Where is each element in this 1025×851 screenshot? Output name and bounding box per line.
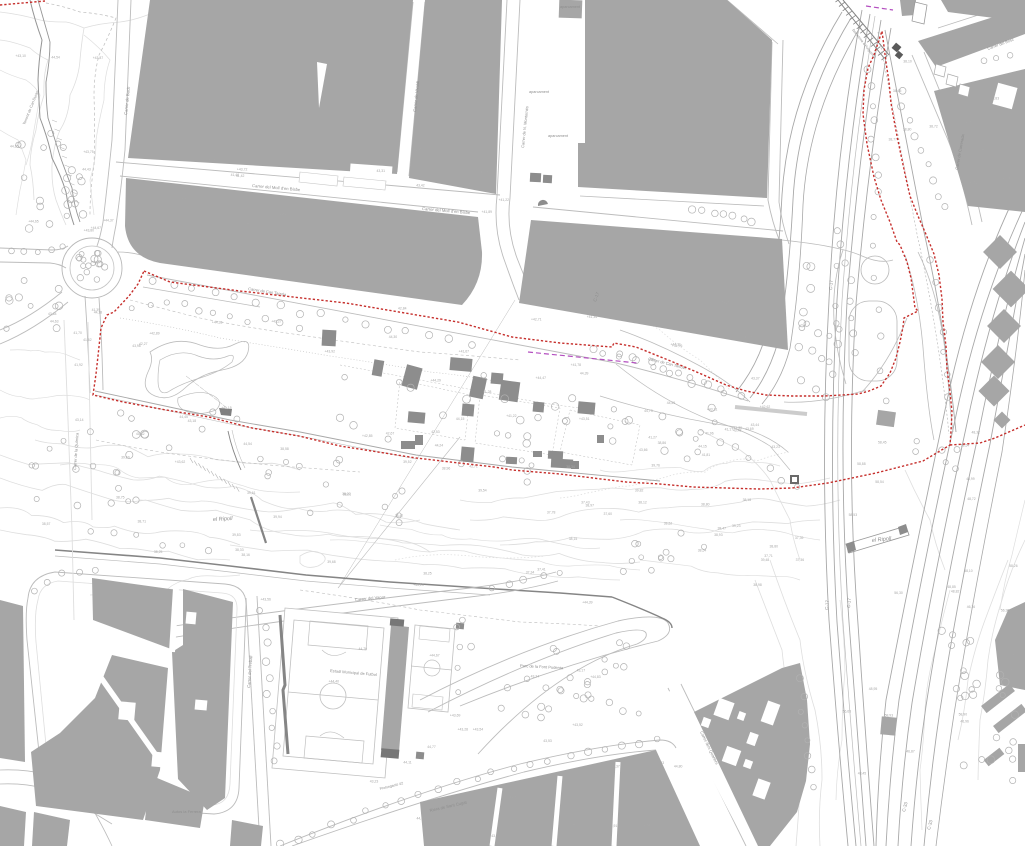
svg-text:+44,37: +44,37 (103, 219, 114, 223)
svg-text:+44,67: +44,67 (429, 654, 440, 658)
svg-text:41,70: 41,70 (73, 331, 82, 335)
svg-text:44,11: 44,11 (403, 761, 411, 765)
svg-text:38,93: 38,93 (714, 533, 723, 537)
svg-text:+42,27: +42,27 (271, 319, 282, 323)
svg-text:39,48: 39,48 (761, 558, 770, 562)
svg-text:+42,62: +42,62 (760, 405, 771, 409)
svg-text:+41,15: +41,15 (221, 406, 232, 410)
svg-text:38,21: 38,21 (343, 493, 352, 497)
svg-text:48,32: 48,32 (972, 431, 981, 435)
svg-text:43,66: 43,66 (639, 448, 648, 452)
svg-text:+43,62: +43,62 (175, 460, 186, 464)
svg-text:aparcament: aparcament (529, 90, 550, 94)
svg-text:+44,33: +44,33 (212, 320, 223, 324)
svg-text:46,87: 46,87 (1008, 653, 1017, 657)
svg-text:+43,69: +43,69 (450, 714, 461, 718)
svg-text:+43,28: +43,28 (458, 728, 469, 732)
svg-text:38,86: 38,86 (658, 441, 667, 445)
svg-text:38,57: 38,57 (42, 522, 51, 526)
svg-text:+43,75: +43,75 (83, 150, 94, 154)
svg-text:43,69: 43,69 (745, 427, 754, 431)
svg-text:37,60: 37,60 (604, 512, 613, 516)
svg-text:44,52: 44,52 (417, 817, 426, 821)
svg-text:44,45: 44,45 (179, 415, 188, 419)
svg-text:43,14: 43,14 (75, 418, 84, 422)
svg-text:38,80: 38,80 (701, 502, 710, 506)
svg-text:+43,10: +43,10 (15, 54, 26, 58)
svg-text:+43,13: +43,13 (413, 583, 424, 587)
svg-text:38,18: 38,18 (743, 498, 752, 502)
svg-text:+44,65: +44,65 (28, 219, 39, 223)
svg-text:+41,22: +41,22 (506, 414, 517, 418)
svg-text:37,39: 37,39 (795, 536, 804, 540)
svg-text:+43,31: +43,31 (707, 408, 718, 412)
svg-text:46,87: 46,87 (906, 750, 915, 754)
svg-text:38,80: 38,80 (903, 127, 912, 131)
svg-text:39,83: 39,83 (232, 533, 241, 537)
svg-text:43,98: 43,98 (132, 344, 141, 348)
svg-text:44,54: 44,54 (243, 442, 252, 446)
svg-text:38,83: 38,83 (991, 96, 1000, 100)
svg-text:41,89: 41,89 (207, 157, 216, 161)
svg-text:58,90: 58,90 (959, 713, 968, 717)
svg-text:37,43: 37,43 (581, 501, 590, 505)
svg-text:44,16: 44,16 (721, 301, 730, 305)
svg-text:44,24: 44,24 (435, 443, 444, 447)
svg-text:43,53: 43,53 (543, 739, 552, 743)
svg-text:41,92: 41,92 (74, 363, 83, 367)
svg-text:58,54: 58,54 (875, 480, 884, 484)
svg-text:38,12: 38,12 (638, 501, 647, 505)
svg-text:44,59: 44,59 (667, 401, 676, 405)
svg-text:56,30: 56,30 (894, 591, 903, 595)
svg-text:56,90: 56,90 (1001, 609, 1010, 613)
svg-text:+42,85: +42,85 (362, 434, 373, 438)
svg-text:37,36: 37,36 (796, 558, 805, 562)
svg-text:44,15: 44,15 (456, 417, 465, 421)
svg-text:58,26: 58,26 (1009, 564, 1018, 568)
svg-text:41,27: 41,27 (648, 435, 657, 439)
svg-text:+43,72: +43,72 (237, 167, 248, 171)
svg-text:C-17: C-17 (828, 279, 834, 290)
svg-text:+41,34: +41,34 (587, 315, 598, 319)
svg-text:+41,22: +41,22 (499, 198, 510, 202)
svg-text:38,75: 38,75 (116, 496, 125, 500)
svg-text:38,72: 38,72 (929, 124, 938, 128)
svg-text:el Ripoll: el Ripoll (213, 516, 234, 523)
svg-text:58,93: 58,93 (885, 714, 894, 718)
svg-text:58,10: 58,10 (964, 569, 973, 573)
svg-text:+43,52: +43,52 (572, 723, 583, 727)
svg-text:38,34: 38,34 (566, 465, 575, 469)
svg-text:38,33: 38,33 (235, 548, 244, 552)
svg-text:43,84: 43,84 (491, 834, 500, 838)
svg-text:39,23: 39,23 (732, 524, 741, 528)
svg-text:43,23: 43,23 (771, 445, 780, 449)
svg-text:C-17: C-17 (846, 597, 852, 608)
svg-text:+44,47: +44,47 (536, 376, 547, 380)
svg-text:46,96: 46,96 (960, 719, 969, 723)
svg-text:48,99: 48,99 (966, 477, 975, 481)
svg-text:+41,89: +41,89 (482, 210, 493, 214)
svg-text:+43,54: +43,54 (473, 728, 484, 732)
svg-text:58,88: 58,88 (857, 462, 866, 466)
svg-text:+41,78: +41,78 (571, 363, 582, 367)
svg-text:38,52: 38,52 (664, 522, 673, 526)
svg-text:+41,18: +41,18 (178, 196, 189, 200)
svg-text:43,64: 43,64 (48, 312, 57, 316)
svg-text:44,80: 44,80 (674, 765, 683, 769)
svg-text:37,71: 37,71 (764, 554, 773, 558)
svg-text:48,45: 48,45 (858, 771, 867, 775)
svg-text:+44,29: +44,29 (430, 378, 441, 382)
svg-text:39,94: 39,94 (273, 515, 282, 519)
svg-text:39,69: 39,69 (121, 455, 130, 459)
svg-text:+44,37: +44,37 (609, 765, 620, 769)
svg-text:aparcament: aparcament (560, 5, 581, 9)
svg-text:43,42: 43,42 (416, 184, 425, 188)
svg-text:+42,82: +42,82 (244, 221, 255, 225)
svg-text:43,59: 43,59 (462, 181, 471, 185)
svg-text:44,18: 44,18 (94, 311, 103, 315)
svg-text:39,54: 39,54 (478, 489, 487, 493)
svg-text:+43,65: +43,65 (478, 170, 489, 174)
svg-text:56,65: 56,65 (843, 710, 852, 714)
svg-text:44,15: 44,15 (698, 444, 707, 448)
svg-text:48,82: 48,82 (951, 590, 960, 594)
svg-text:41,42: 41,42 (236, 174, 245, 178)
svg-text:+44,54: +44,54 (640, 824, 651, 828)
svg-text:48,72: 48,72 (967, 497, 976, 501)
svg-text:43,23: 43,23 (370, 779, 379, 783)
svg-text:aparcament: aparcament (548, 134, 569, 138)
svg-text:44,73: 44,73 (644, 409, 653, 413)
svg-text:44,30: 44,30 (389, 335, 398, 339)
svg-text:44,33: 44,33 (656, 761, 665, 765)
svg-text:+41,21: +41,21 (276, 212, 287, 216)
svg-text:44,70: 44,70 (359, 647, 368, 651)
svg-text:38,15: 38,15 (569, 537, 578, 541)
svg-text:37,78: 37,78 (547, 511, 556, 515)
svg-text:+42,71: +42,71 (531, 318, 542, 322)
svg-text:+42,75: +42,75 (742, 335, 753, 339)
svg-text:+44,40: +44,40 (329, 679, 340, 683)
svg-text:41,30: 41,30 (734, 426, 743, 430)
svg-text:39,52: 39,52 (403, 460, 412, 464)
svg-text:38,25: 38,25 (423, 572, 432, 576)
svg-text:+43,51: +43,51 (579, 417, 590, 421)
svg-text:58,45: 58,45 (878, 441, 887, 445)
svg-text:41,28: 41,28 (483, 390, 492, 394)
svg-text:58,53: 58,53 (849, 513, 858, 517)
svg-text:38,51: 38,51 (969, 181, 978, 185)
svg-text:44,63: 44,63 (50, 320, 59, 324)
svg-text:Autos la Ferrera: Autos la Ferrera (172, 809, 201, 814)
svg-text:42,67: 42,67 (386, 432, 395, 436)
svg-text:38,47: 38,47 (718, 527, 727, 531)
svg-text:38,77: 38,77 (982, 147, 991, 151)
svg-text:38,98: 38,98 (753, 583, 762, 587)
svg-text:46,16: 46,16 (967, 605, 976, 609)
svg-text:+44,39: +44,39 (582, 601, 593, 605)
svg-text:44,54: 44,54 (51, 55, 60, 59)
svg-text:39,82: 39,82 (635, 489, 644, 493)
svg-text:38,16: 38,16 (241, 553, 250, 557)
svg-text:39,61: 39,61 (247, 491, 256, 495)
svg-text:+42,89: +42,89 (149, 332, 160, 336)
svg-text:38,80: 38,80 (770, 545, 779, 549)
svg-text:43,17: 43,17 (577, 669, 586, 673)
svg-text:38,96: 38,96 (1002, 176, 1011, 180)
svg-text:44,39: 44,39 (580, 372, 589, 376)
svg-text:41,81: 41,81 (702, 453, 711, 457)
svg-text:38,65: 38,65 (893, 89, 902, 93)
svg-text:44,77: 44,77 (427, 745, 436, 749)
svg-text:43,34: 43,34 (531, 674, 540, 678)
svg-text:43,31: 43,31 (377, 169, 386, 173)
svg-text:38,96: 38,96 (442, 467, 451, 471)
svg-text:38,10: 38,10 (903, 60, 912, 64)
svg-text:42,84: 42,84 (398, 306, 407, 310)
svg-text:44,91: 44,91 (609, 824, 618, 828)
svg-text:+43,87: +43,87 (93, 56, 104, 60)
svg-text:38,77: 38,77 (889, 138, 898, 142)
svg-text:41,96: 41,96 (705, 432, 714, 436)
svg-text:38,25: 38,25 (154, 550, 163, 554)
svg-text:44,43: 44,43 (82, 168, 91, 172)
svg-text:+43,92: +43,92 (325, 350, 336, 354)
svg-text:44,89: 44,89 (573, 822, 582, 826)
svg-text:38,71: 38,71 (138, 520, 147, 524)
svg-text:39,68: 39,68 (327, 560, 336, 564)
svg-text:+43,80: +43,80 (84, 229, 95, 233)
svg-text:38,47: 38,47 (395, 514, 404, 518)
svg-text:37,41: 37,41 (537, 567, 546, 571)
svg-text:43,37: 43,37 (751, 376, 760, 380)
svg-text:38,58: 38,58 (280, 447, 289, 451)
svg-text:48,17: 48,17 (1006, 666, 1015, 670)
svg-text:37,34: 37,34 (526, 570, 535, 574)
svg-text:39,76: 39,76 (651, 463, 660, 467)
svg-text:41,82: 41,82 (83, 338, 92, 342)
svg-text:+43,56: +43,56 (260, 598, 271, 602)
svg-text:C-17: C-17 (824, 599, 830, 610)
svg-text:43,98: 43,98 (509, 795, 518, 799)
svg-text:+41,76: +41,76 (672, 344, 683, 348)
svg-text:44,65: 44,65 (10, 145, 19, 149)
svg-text:48,95: 48,95 (869, 687, 878, 691)
svg-text:42,53: 42,53 (431, 430, 440, 434)
svg-text:41,42: 41,42 (136, 432, 145, 436)
svg-text:43,39: 43,39 (414, 148, 423, 152)
svg-text:+44,83: +44,83 (590, 675, 601, 679)
svg-text:43,18: 43,18 (188, 419, 197, 423)
svg-text:38,54: 38,54 (698, 549, 707, 553)
svg-text:38,52: 38,52 (965, 121, 974, 125)
svg-text:+41,67: +41,67 (459, 349, 470, 353)
